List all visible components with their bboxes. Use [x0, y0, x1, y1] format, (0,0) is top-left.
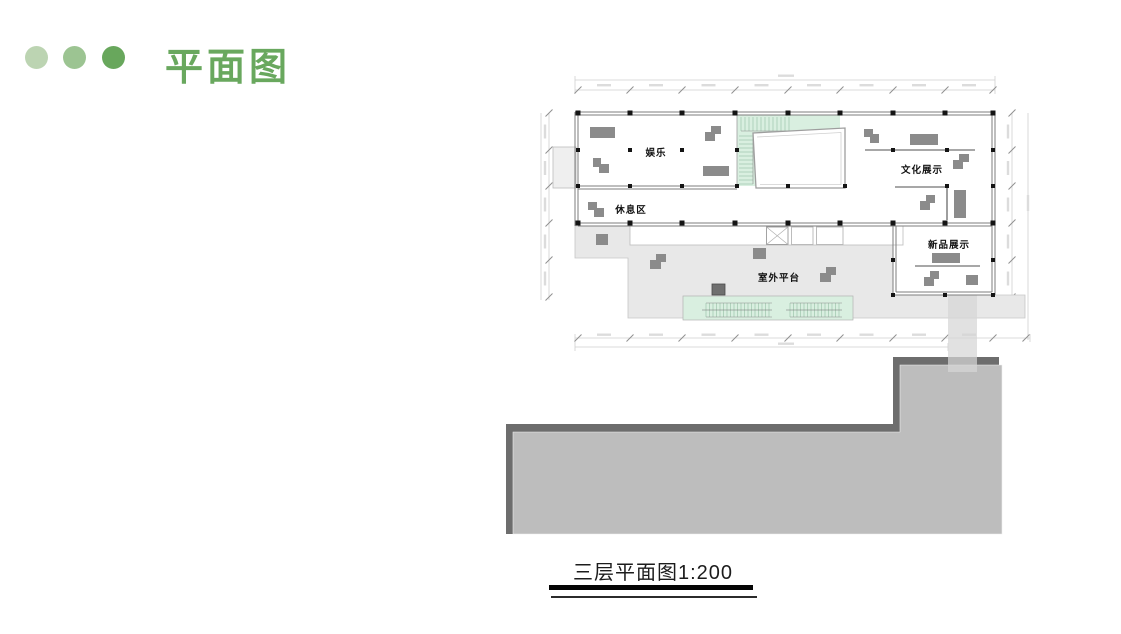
- caption-underline-thin: [551, 596, 757, 598]
- room-label-outdoor-platform: 室外平台: [758, 272, 800, 284]
- floor-plan-drawing: 娱乐 休息区 文化展示 新品展示 室外平台: [0, 0, 1121, 634]
- roof-slab: [513, 365, 1002, 534]
- elevator-core: [630, 226, 903, 245]
- room-label-culture-display: 文化展示: [900, 164, 943, 176]
- left-balcony: [553, 147, 576, 188]
- plan-caption: 三层平面图1:200: [573, 556, 733, 585]
- room-label-rest-area: 休息区: [614, 204, 647, 216]
- service-shaft: [792, 227, 814, 245]
- stair-shaft: [817, 227, 844, 245]
- room-label-entertainment: 娱乐: [645, 147, 666, 159]
- roof-mass: [506, 357, 1002, 534]
- slide-canvas: 平面图: [0, 0, 1121, 634]
- corridor-to-roof: [948, 295, 977, 372]
- caption-underline-thick: [549, 585, 753, 590]
- platform-stairs: [683, 296, 853, 320]
- atrium-void: [753, 128, 845, 188]
- room-label-new-product-display: 新品展示: [928, 239, 970, 251]
